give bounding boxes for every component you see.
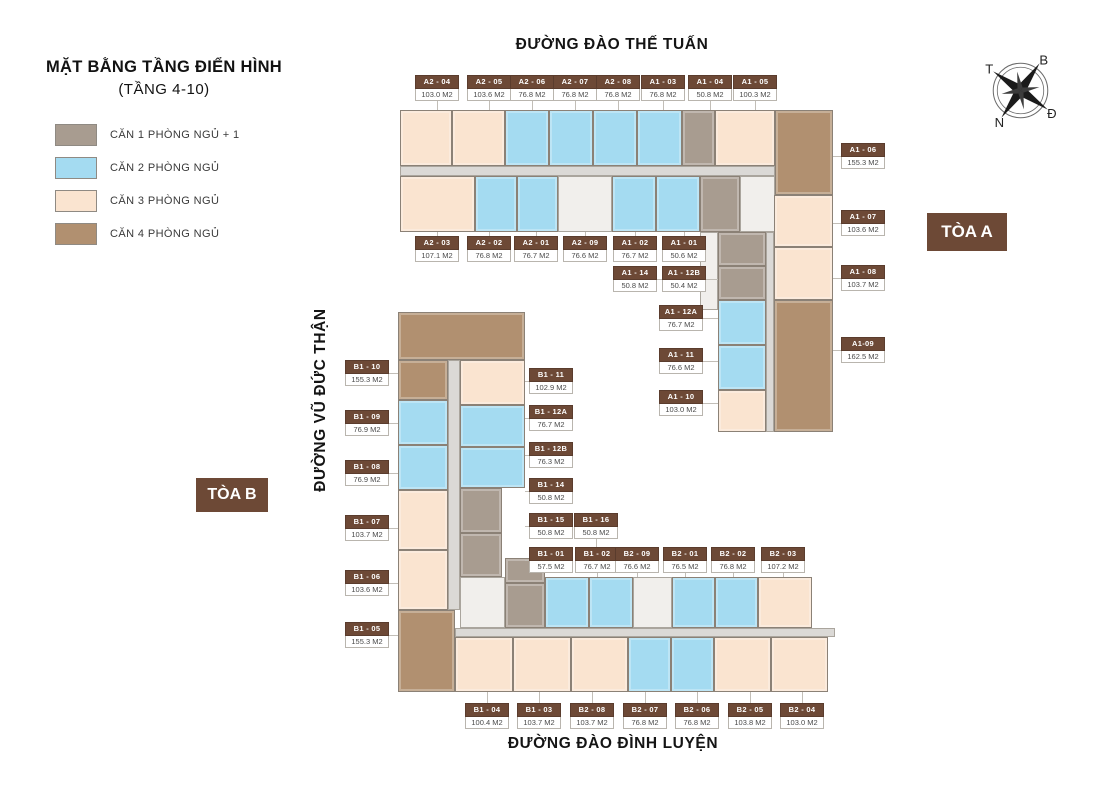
unit-code: A1 - 07 xyxy=(841,210,885,224)
unit-code: B2 - 09 xyxy=(615,547,659,561)
unit-label-b2-02: B2 - 0276.8 M2 xyxy=(711,547,755,573)
leader-line xyxy=(833,223,841,224)
leader-line xyxy=(487,692,488,703)
corridor-tower-b-horizontal xyxy=(455,628,835,637)
unit-b1-03 xyxy=(513,637,571,692)
unit-label-a2-02: A2 - 0276.8 M2 xyxy=(467,236,511,262)
unit-a1-08 xyxy=(774,247,833,300)
unit-area: 50.8 M2 xyxy=(688,89,732,101)
unit-label-a2-04: A2 - 04103.0 M2 xyxy=(415,75,459,101)
unit-b2-05 xyxy=(714,637,771,692)
street-name-bottom: ĐƯỜNG ĐÀO ĐÌNH LUYỆN xyxy=(463,735,763,753)
unit-code: B2 - 07 xyxy=(623,703,667,717)
leader-line xyxy=(597,573,598,577)
unit-code: B1 - 02 xyxy=(575,547,619,561)
unit-b1-11 xyxy=(460,360,525,405)
unit-label-b2-03: B2 - 03107.2 M2 xyxy=(761,547,805,573)
leader-line xyxy=(783,573,784,577)
unit-area: 162.5 M2 xyxy=(841,351,885,363)
leader-line xyxy=(755,101,756,110)
unit-a1-12a xyxy=(718,300,766,345)
compass-label-east: Đ xyxy=(1047,106,1056,121)
unit-label-b1-06: B1 - 06103.6 M2 xyxy=(345,570,389,596)
compass-label-west: T xyxy=(985,61,993,76)
unit-label-a2-01: A2 - 0176.7 M2 xyxy=(514,236,558,262)
unit-b1-10 xyxy=(398,312,525,360)
leader-line xyxy=(703,318,718,319)
unit-b1-12a xyxy=(460,405,525,447)
unit-area: 76.6 M2 xyxy=(659,362,703,374)
unit-code: B1 - 05 xyxy=(345,622,389,636)
leader-line xyxy=(703,361,718,362)
unit-code: B1 - 08 xyxy=(345,460,389,474)
core-tower-b-1 xyxy=(460,577,505,628)
leader-line xyxy=(637,573,638,577)
tower-b-tag: TÒA B xyxy=(196,478,268,512)
leader-line xyxy=(539,692,540,703)
leader-line xyxy=(389,528,398,529)
unit-area: 76.6 M2 xyxy=(615,561,659,573)
unit-b1-07 xyxy=(398,490,448,550)
corridor-wing-a xyxy=(766,232,774,432)
leader-line xyxy=(685,573,686,577)
unit-label-a2-06: A2 - 0676.8 M2 xyxy=(510,75,554,101)
unit-code: B2 - 02 xyxy=(711,547,755,561)
unit-b1-15 xyxy=(460,533,502,577)
unit-label-a1-12a: A1 - 12A76.7 M2 xyxy=(659,305,703,331)
core-tower-a-1 xyxy=(558,176,612,232)
legend: CĂN 1 PHÒNG NGỦ + 1CĂN 2 PHÒNG NGỦCĂN 3 … xyxy=(55,124,240,245)
unit-code: B2 - 01 xyxy=(663,547,707,561)
unit-label-b1-01: B1 - 0157.5 M2 xyxy=(529,547,573,573)
tower-a-tag: TÒA A xyxy=(927,213,1007,251)
page-title: MẶT BẰNG TẦNG ĐIỂN HÌNH xyxy=(38,58,290,77)
core-tower-b-2 xyxy=(633,577,672,628)
unit-label-b2-04: B2 - 04103.0 M2 xyxy=(780,703,824,729)
leader-line xyxy=(592,692,593,703)
leader-line xyxy=(645,692,646,703)
unit-area: 100.3 M2 xyxy=(733,89,777,101)
leader-line xyxy=(389,473,398,474)
unit-a1-06 xyxy=(775,110,833,195)
unit-a2-06 xyxy=(505,110,549,166)
unit-area: 76.3 M2 xyxy=(529,456,573,468)
title-block: MẶT BẰNG TẦNG ĐIỂN HÌNH (TẦNG 4-10) xyxy=(38,58,290,98)
unit-b2-04 xyxy=(771,637,828,692)
unit-area: 50.8 M2 xyxy=(574,527,618,539)
unit-area: 103.6 M2 xyxy=(841,224,885,236)
legend-row-1: CĂN 1 PHÒNG NGỦ + 1 xyxy=(55,124,240,146)
unit-code: B1 - 14 xyxy=(529,478,573,492)
unit-a1-09 xyxy=(774,300,833,432)
unit-area: 50.4 M2 xyxy=(662,280,706,292)
unit-label-a1-11: A1 - 1176.6 M2 xyxy=(659,348,703,374)
floor-plan-canvas: MẶT BẰNG TẦNG ĐIỂN HÌNH (TẦNG 4-10) CĂN … xyxy=(0,0,1106,800)
unit-label-b2-06: B2 - 0676.8 M2 xyxy=(675,703,719,729)
legend-row-3: CĂN 3 PHÒNG NGỦ xyxy=(55,190,240,212)
leader-line xyxy=(733,573,734,577)
unit-code: B1 - 03 xyxy=(517,703,561,717)
unit-area: 103.0 M2 xyxy=(415,89,459,101)
unit-area: 103.6 M2 xyxy=(467,89,511,101)
unit-a1-10 xyxy=(718,390,766,432)
unit-a2-07 xyxy=(549,110,593,166)
unit-code: B2 - 04 xyxy=(780,703,824,717)
unit-code: A1 - 02 xyxy=(613,236,657,250)
unit-area: 103.0 M2 xyxy=(659,404,703,416)
leader-line xyxy=(802,692,803,703)
unit-label-b1-12b: B1 - 12B76.3 M2 xyxy=(529,442,573,468)
unit-code: A1 - 06 xyxy=(841,143,885,157)
unit-b1-04 xyxy=(455,637,513,692)
unit-area: 76.8 M2 xyxy=(641,89,685,101)
unit-label-b2-09: B2 - 0976.6 M2 xyxy=(615,547,659,573)
leader-line xyxy=(697,692,698,703)
unit-code: B1 - 16 xyxy=(574,513,618,527)
legend-row-2: CĂN 2 PHÒNG NGỦ xyxy=(55,157,240,179)
unit-code: A2 - 04 xyxy=(415,75,459,89)
unit-area: 107.2 M2 xyxy=(761,561,805,573)
unit-area: 76.5 M2 xyxy=(663,561,707,573)
leader-line xyxy=(703,403,718,404)
unit-label-b1-14: B1 - 1450.8 M2 xyxy=(529,478,573,504)
compass-star xyxy=(974,44,1067,137)
unit-code: B1 - 07 xyxy=(345,515,389,529)
unit-code: A1-09 xyxy=(841,337,885,351)
unit-area: 102.9 M2 xyxy=(529,382,573,394)
unit-a2-09 xyxy=(612,176,656,232)
unit-b2-08 xyxy=(571,637,628,692)
leader-line xyxy=(532,101,533,110)
legend-label-3: CĂN 3 PHÒNG NGỦ xyxy=(110,195,219,207)
unit-area: 155.3 M2 xyxy=(841,157,885,169)
unit-code: B1 - 10 xyxy=(345,360,389,374)
unit-label-b1-08: B1 - 0876.9 M2 xyxy=(345,460,389,486)
unit-area: 76.9 M2 xyxy=(345,424,389,436)
unit-code: A1 - 04 xyxy=(688,75,732,89)
unit-a2-08 xyxy=(593,110,637,166)
unit-code: A2 - 03 xyxy=(415,236,459,250)
unit-area: 50.6 M2 xyxy=(662,250,706,262)
unit-label-b1-12a: B1 - 12A76.7 M2 xyxy=(529,405,573,431)
compass-rose-icon: B Đ N T xyxy=(968,38,1073,143)
page-subtitle: (TẦNG 4-10) xyxy=(38,81,290,98)
unit-label-a2-05: A2 - 05103.6 M2 xyxy=(467,75,511,101)
unit-area: 155.3 M2 xyxy=(345,636,389,648)
unit-code: B1 - 06 xyxy=(345,570,389,584)
legend-swatch-3 xyxy=(55,190,97,212)
corridor-tower-b-vertical xyxy=(448,360,460,610)
street-name-left: ĐƯỜNG VŨ ĐỨC THẬN xyxy=(312,300,332,500)
unit-code: A1 - 10 xyxy=(659,390,703,404)
unit-a1-02 xyxy=(656,176,700,232)
unit-b1-05 xyxy=(398,610,455,692)
unit-area: 76.8 M2 xyxy=(675,717,719,729)
unit-label-a1-02: A1 - 0276.7 M2 xyxy=(613,236,657,262)
unit-code: A2 - 09 xyxy=(563,236,607,250)
leader-line xyxy=(618,101,619,110)
unit-b2-09 xyxy=(589,577,633,628)
unit-area: 103.7 M2 xyxy=(841,279,885,291)
unit-label-a1-14: A1 - 1450.8 M2 xyxy=(613,266,657,292)
unit-code: B2 - 08 xyxy=(570,703,614,717)
leader-line xyxy=(750,692,751,703)
unit-a1-07 xyxy=(774,195,833,247)
unit-a1-01 xyxy=(700,176,740,232)
unit-code: A1 - 01 xyxy=(662,236,706,250)
unit-label-b1-04: B1 - 04100.4 M2 xyxy=(465,703,509,729)
unit-label-a2-09: A2 - 0976.6 M2 xyxy=(563,236,607,262)
legend-label-4: CĂN 4 PHÒNG NGỦ xyxy=(110,228,219,240)
unit-label-a1-12b: A1 - 12B50.4 M2 xyxy=(662,266,706,292)
unit-label-b1-11: B1 - 11102.9 M2 xyxy=(529,368,573,394)
unit-code: A2 - 06 xyxy=(510,75,554,89)
unit-label-b1-02: B1 - 0276.7 M2 xyxy=(575,547,619,573)
unit-b1-01 xyxy=(505,583,545,628)
unit-code: A1 - 08 xyxy=(841,265,885,279)
unit-code: A2 - 08 xyxy=(596,75,640,89)
unit-label-a1-07: A1 - 07103.6 M2 xyxy=(841,210,885,236)
unit-area: 76.7 M2 xyxy=(613,250,657,262)
leader-line xyxy=(706,279,718,280)
unit-label-a1-06: A1 - 06155.3 M2 xyxy=(841,143,885,169)
unit-area: 57.5 M2 xyxy=(529,561,573,573)
unit-area: 50.8 M2 xyxy=(613,280,657,292)
leader-line xyxy=(389,583,398,584)
unit-label-b1-16: B1 - 1650.8 M2 xyxy=(574,513,618,539)
unit-area: 50.8 M2 xyxy=(529,492,573,504)
legend-swatch-2 xyxy=(55,157,97,179)
unit-code: B2 - 03 xyxy=(761,547,805,561)
leader-line xyxy=(710,101,711,110)
legend-row-4: CĂN 4 PHÒNG NGỦ xyxy=(55,223,240,245)
leader-line xyxy=(389,423,398,424)
leader-line xyxy=(663,101,664,110)
unit-code: A2 - 01 xyxy=(514,236,558,250)
unit-code: A2 - 07 xyxy=(553,75,597,89)
unit-label-b1-10: B1 - 10155.3 M2 xyxy=(345,360,389,386)
leader-line xyxy=(437,101,438,110)
unit-b2-07 xyxy=(628,637,671,692)
unit-label-b2-07: B2 - 0776.8 M2 xyxy=(623,703,667,729)
core-tower-a-2 xyxy=(740,176,775,232)
leader-line xyxy=(389,373,398,374)
unit-area: 155.3 M2 xyxy=(345,374,389,386)
unit-area: 103.8 M2 xyxy=(728,717,772,729)
unit-code: B1 - 12B xyxy=(529,442,573,456)
unit-b1-12b xyxy=(460,447,525,488)
leader-line xyxy=(833,156,841,157)
unit-area: 76.7 M2 xyxy=(514,250,558,262)
unit-label-b1-03: B1 - 03103.7 M2 xyxy=(517,703,561,729)
unit-area: 76.9 M2 xyxy=(345,474,389,486)
unit-area: 76.6 M2 xyxy=(563,250,607,262)
legend-swatch-4 xyxy=(55,223,97,245)
unit-label-a1-01: A1 - 0150.6 M2 xyxy=(662,236,706,262)
unit-code: B1 - 04 xyxy=(465,703,509,717)
unit-area: 107.1 M2 xyxy=(415,250,459,262)
corridor-tower-a xyxy=(400,166,775,176)
unit-code: A2 - 02 xyxy=(467,236,511,250)
unit-a2-03 xyxy=(400,176,475,232)
unit-code: A1 - 12B xyxy=(662,266,706,280)
unit-b2-06 xyxy=(671,637,714,692)
legend-label-2: CĂN 2 PHÒNG NGỦ xyxy=(110,162,219,174)
unit-code: B1 - 11 xyxy=(529,368,573,382)
unit-area: 76.8 M2 xyxy=(623,717,667,729)
unit-label-b2-08: B2 - 08103.7 M2 xyxy=(570,703,614,729)
unit-b1-10-lower xyxy=(398,360,448,400)
unit-code: A1 - 03 xyxy=(641,75,685,89)
unit-code: A1 - 05 xyxy=(733,75,777,89)
unit-code: A2 - 05 xyxy=(467,75,511,89)
legend-swatch-1 xyxy=(55,124,97,146)
unit-area: 103.6 M2 xyxy=(345,584,389,596)
compass-label-north: B xyxy=(1039,52,1048,67)
unit-a1-11 xyxy=(718,345,766,390)
unit-area: 76.8 M2 xyxy=(711,561,755,573)
unit-label-a2-03: A2 - 03107.1 M2 xyxy=(415,236,459,262)
leader-line xyxy=(833,278,841,279)
unit-b2-03 xyxy=(758,577,812,628)
unit-area: 103.7 M2 xyxy=(570,717,614,729)
unit-area: 103.7 M2 xyxy=(517,717,561,729)
unit-code: B2 - 06 xyxy=(675,703,719,717)
unit-area: 76.7 M2 xyxy=(529,419,573,431)
unit-code: B1 - 12A xyxy=(529,405,573,419)
unit-b1-08 xyxy=(398,445,448,490)
unit-a1-05 xyxy=(715,110,775,166)
unit-area: 76.8 M2 xyxy=(467,250,511,262)
street-name-top: ĐƯỜNG ĐÀO THẾ TUẤN xyxy=(462,36,762,54)
compass-label-south: N xyxy=(995,115,1004,130)
unit-a1-04 xyxy=(682,110,715,166)
unit-code: A1 - 14 xyxy=(613,266,657,280)
unit-area: 76.7 M2 xyxy=(659,319,703,331)
unit-label-b1-09: B1 - 0976.9 M2 xyxy=(345,410,389,436)
unit-a1-03 xyxy=(637,110,682,166)
leader-line xyxy=(575,101,576,110)
leader-line xyxy=(833,350,841,351)
leader-line xyxy=(489,101,490,110)
unit-b1-09 xyxy=(398,400,448,445)
unit-label-a1-03: A1 - 0376.8 M2 xyxy=(641,75,685,101)
unit-a2-01 xyxy=(517,176,558,232)
unit-a1-14 xyxy=(718,232,766,266)
unit-b1-14 xyxy=(460,488,502,533)
unit-a2-04 xyxy=(400,110,452,166)
unit-label-b1-15: B1 - 1550.8 M2 xyxy=(529,513,573,539)
unit-label-b1-05: B1 - 05155.3 M2 xyxy=(345,622,389,648)
unit-label-b1-07: B1 - 07103.7 M2 xyxy=(345,515,389,541)
unit-label-a2-07: A2 - 0776.8 M2 xyxy=(553,75,597,101)
unit-area: 50.8 M2 xyxy=(529,527,573,539)
leader-line xyxy=(389,635,398,636)
unit-code: B2 - 05 xyxy=(728,703,772,717)
unit-label-b2-01: B2 - 0176.5 M2 xyxy=(663,547,707,573)
unit-a2-02 xyxy=(475,176,517,232)
unit-code: B1 - 09 xyxy=(345,410,389,424)
unit-label-a2-08: A2 - 0876.8 M2 xyxy=(596,75,640,101)
unit-code: B1 - 15 xyxy=(529,513,573,527)
unit-label-a1-05: A1 - 05100.3 M2 xyxy=(733,75,777,101)
unit-label-a1-08: A1 - 08103.7 M2 xyxy=(841,265,885,291)
unit-area: 76.7 M2 xyxy=(575,561,619,573)
unit-a1-12b xyxy=(718,266,766,300)
unit-area: 76.8 M2 xyxy=(596,89,640,101)
unit-b2-01 xyxy=(672,577,715,628)
unit-a2-05 xyxy=(452,110,505,166)
unit-code: A1 - 12A xyxy=(659,305,703,319)
unit-b1-06 xyxy=(398,550,448,610)
unit-area: 103.0 M2 xyxy=(780,717,824,729)
unit-b2-02 xyxy=(715,577,758,628)
unit-code: B1 - 01 xyxy=(529,547,573,561)
unit-label-a1-09: A1-09162.5 M2 xyxy=(841,337,885,363)
unit-area: 100.4 M2 xyxy=(465,717,509,729)
unit-label-a1-10: A1 - 10103.0 M2 xyxy=(659,390,703,416)
legend-label-1: CĂN 1 PHÒNG NGỦ + 1 xyxy=(110,129,240,141)
unit-b1-02 xyxy=(545,577,589,628)
unit-area: 103.7 M2 xyxy=(345,529,389,541)
unit-label-b2-05: B2 - 05103.8 M2 xyxy=(728,703,772,729)
unit-code: A1 - 11 xyxy=(659,348,703,362)
unit-area: 76.8 M2 xyxy=(510,89,554,101)
unit-area: 76.8 M2 xyxy=(553,89,597,101)
unit-label-a1-04: A1 - 0450.8 M2 xyxy=(688,75,732,101)
